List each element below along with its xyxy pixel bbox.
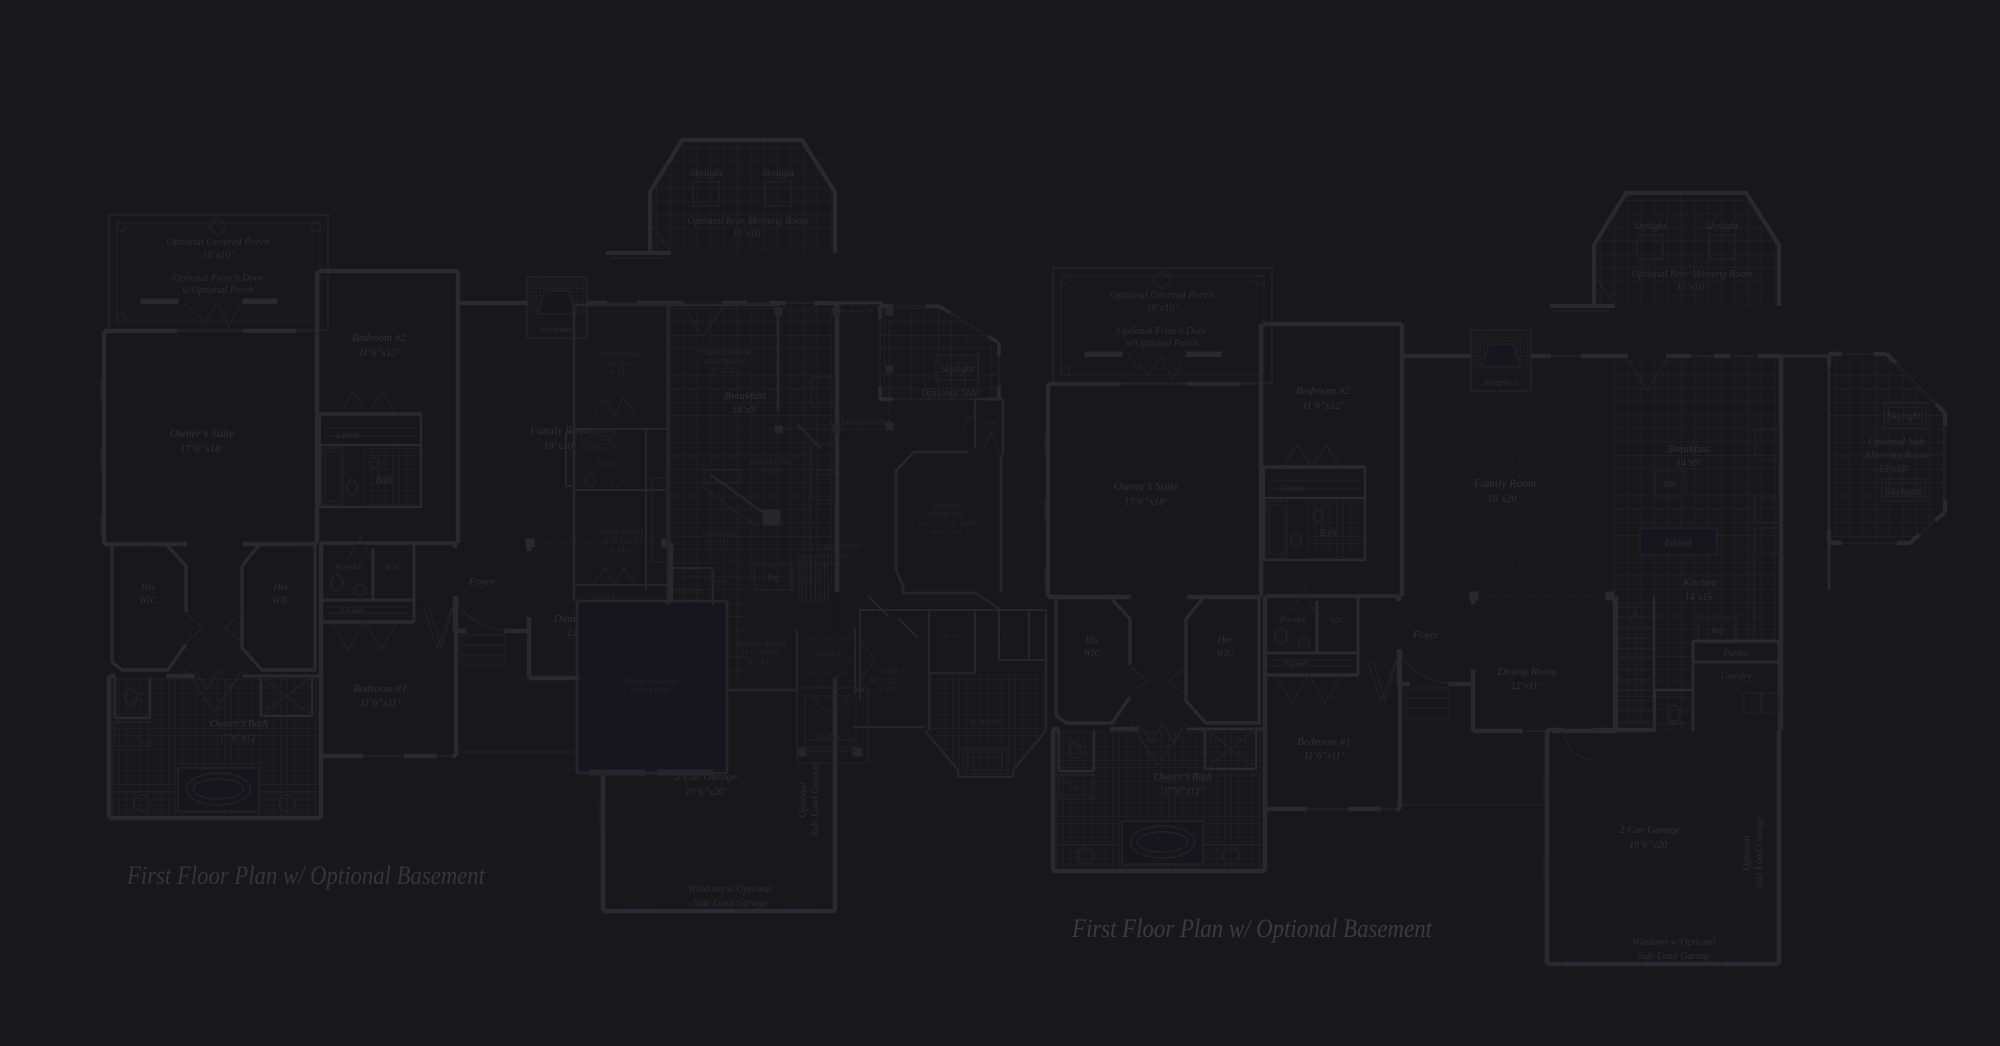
svg-text:M. BATH: M. BATH: [970, 720, 1000, 727]
svg-text:9’ CLG.: 9’ CLG.: [878, 687, 903, 694]
svg-text:NOOK: NOOK: [761, 468, 782, 475]
svg-text:Optional Side: Optional Side: [921, 388, 979, 399]
svg-text:11’0”X12’4”: 11’0”X12’4”: [870, 678, 910, 685]
svg-text:17’4”X18’0”: 17’4”X18’0”: [816, 553, 856, 560]
svg-text:12’0”X11’4”: 12’0”X11’4”: [602, 361, 642, 368]
svg-text:9’ CLG.: 9’ CLG.: [749, 659, 774, 666]
svg-text:FOYER: FOYER: [818, 651, 842, 658]
svg-text:First Floor Plan w/ Optional: First Floor Plan w/ Optional Basement: [126, 861, 486, 890]
svg-text:Optional Side: Optional Side: [1868, 437, 1926, 448]
svg-text:6x6.6: 6x6.6: [1670, 720, 1685, 727]
svg-text:9’ CLG.: 9’ CLG.: [707, 540, 732, 547]
svg-text:BREAKFAST: BREAKFAST: [750, 459, 792, 466]
svg-text:BATH: BATH: [597, 461, 616, 468]
svg-text:Island: Island: [1664, 538, 1692, 549]
svg-text:DEN: DEN: [882, 669, 897, 676]
svg-text:BEDROOM#4: BEDROOM#4: [600, 529, 645, 536]
svg-text:Skylight: Skylight: [1887, 411, 1922, 422]
svg-text:FAMILY ROOM: FAMILY ROOM: [699, 350, 750, 357]
svg-text:LIVING ROOM: LIVING ROOM: [811, 544, 861, 551]
svg-text:BEDROOM#3: BEDROOM#3: [600, 352, 645, 359]
svg-text:Pantry: Pantry: [1723, 648, 1749, 658]
svg-text:16’0”X13’10”+BAY: 16’0”X13’10”+BAY: [917, 520, 978, 527]
svg-text:9’ CLG.: 9’ CLG.: [610, 547, 635, 554]
svg-text:UTILITY: UTILITY: [675, 589, 705, 596]
svg-text:11’0”X11’3”: 11’0”X11’3”: [602, 538, 642, 545]
svg-text:First Floor Plan w/ Optional: First Floor Plan w/ Optional Basement: [1071, 914, 1433, 943]
svg-text:DW: DW: [1663, 480, 1678, 489]
svg-text:Morning Room: Morning Room: [1864, 450, 1929, 461]
svg-text:17’11”X19’9”: 17’11”X19’9”: [703, 359, 747, 366]
svg-text:9’ CLG.: 9’ CLG.: [610, 370, 635, 377]
svg-text:W.I.C.: W.I.C.: [1002, 632, 1021, 639]
svg-text:2 CAR GARAGE: 2 CAR GARAGE: [624, 679, 678, 686]
svg-text:15’x10’: 15’x10’: [1878, 464, 1910, 475]
svg-text:BATH: BATH: [979, 421, 997, 428]
svg-text:20’0”X21’8”: 20’0”X21’8”: [631, 688, 671, 695]
svg-text:DINING ROOM: DINING ROOM: [736, 641, 787, 648]
svg-text:CLOSET: CLOSET: [590, 594, 616, 601]
svg-text:10’0” CLG.: 10’0” CLG.: [929, 529, 964, 536]
svg-text:Skylight: Skylight: [940, 364, 975, 375]
svg-text:9’ CLG.: 9’ CLG.: [713, 368, 738, 375]
svg-text:14’x15’: 14’x15’: [1684, 592, 1716, 603]
svg-text:Laundry: Laundry: [1720, 671, 1752, 681]
svg-text:Kitchen: Kitchen: [1682, 577, 1718, 589]
svg-text:10’ CLG.: 10’ CLG.: [822, 562, 851, 569]
svg-text:MASTER: MASTER: [933, 503, 962, 510]
svg-text:KITCHEN: KITCHEN: [703, 531, 736, 538]
svg-text:BEDROOM: BEDROOM: [929, 512, 964, 519]
svg-text:11’0”X13’0”: 11’0”X13’0”: [741, 650, 781, 657]
svg-text:ENTRY: ENTRY: [818, 734, 843, 742]
svg-text:COVERED PATIO: COVERED PATIO: [830, 419, 889, 427]
svg-text:Skylight: Skylight: [1886, 487, 1921, 498]
svg-text:W.I.C.: W.I.C.: [943, 632, 962, 639]
